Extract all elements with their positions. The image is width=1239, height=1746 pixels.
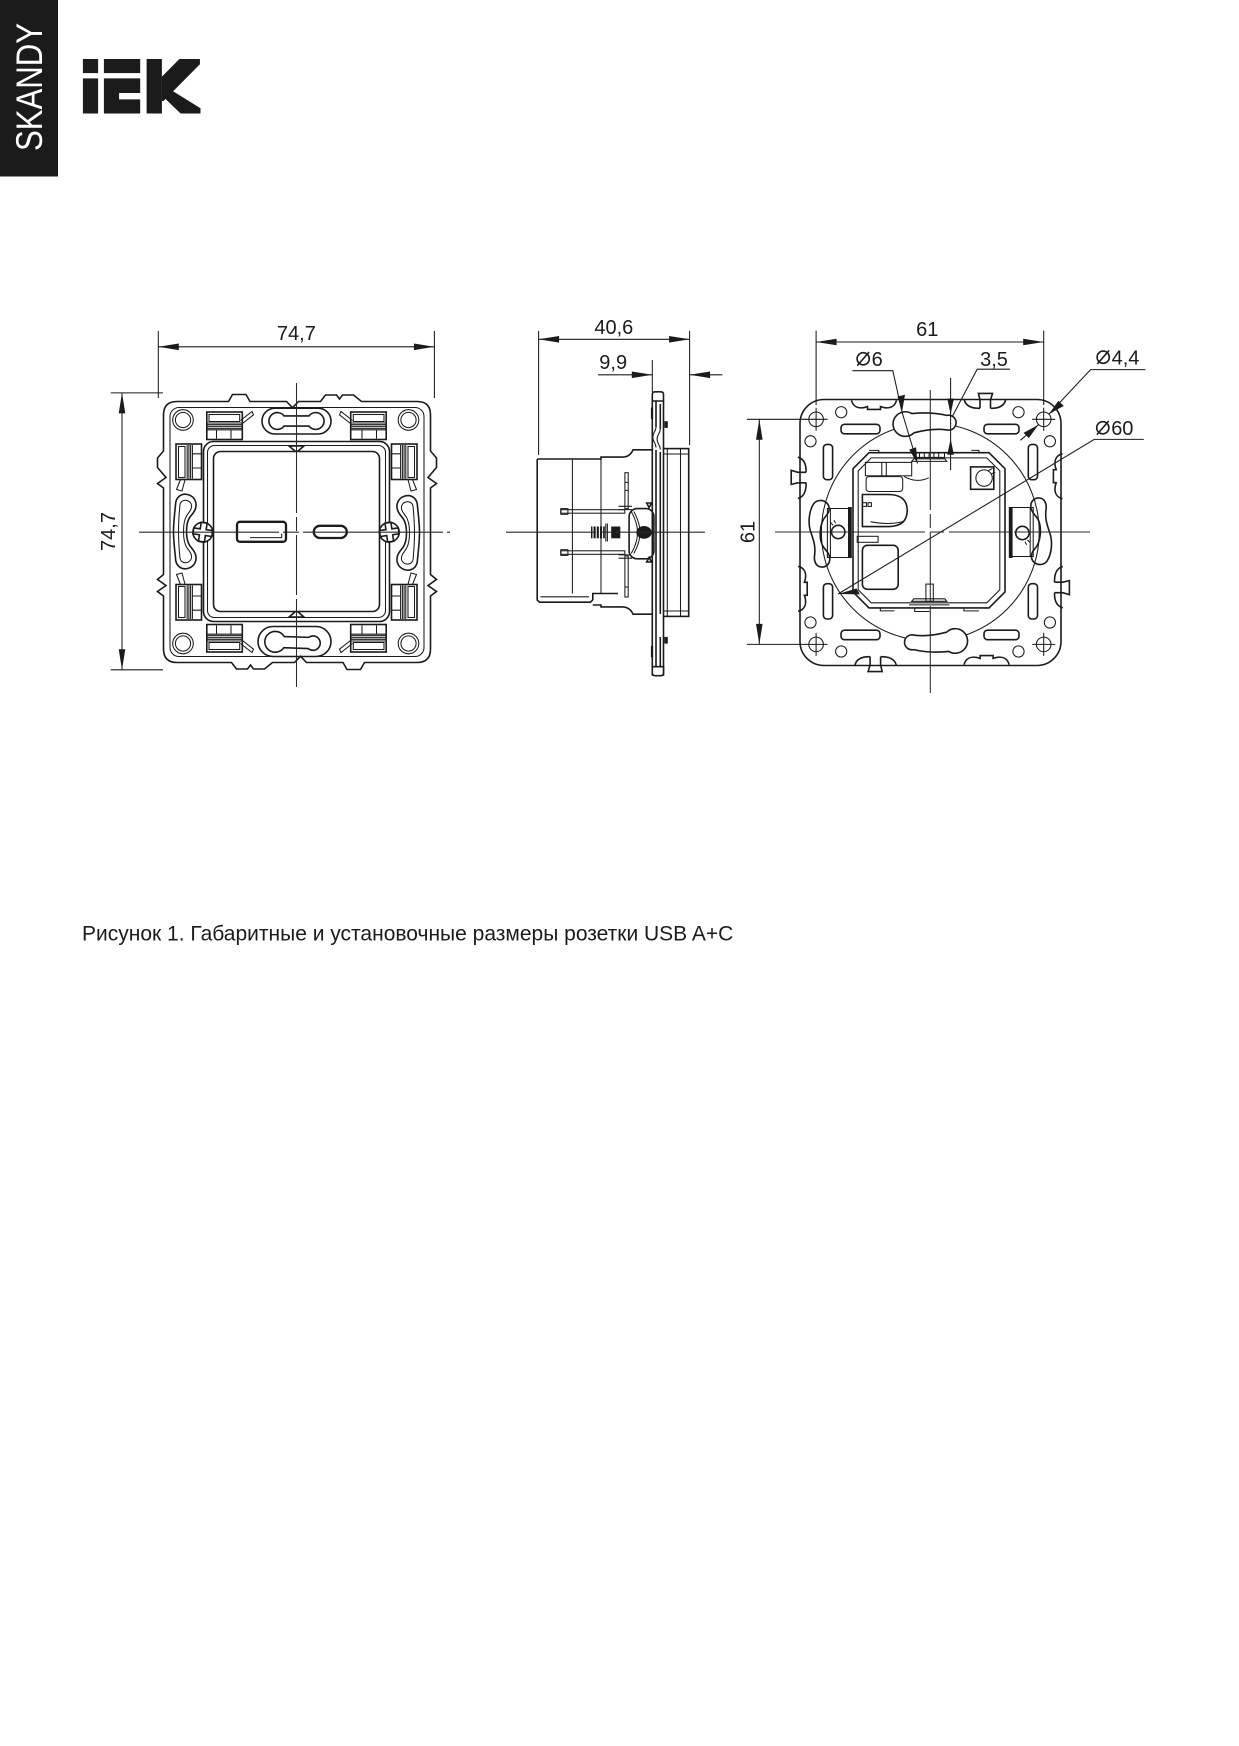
- svg-text:60: 60: [1111, 418, 1133, 440]
- svg-text:3,5: 3,5: [980, 349, 1008, 371]
- svg-text:Рисунок 1. Габаритные и устано: Рисунок 1. Габаритные и установочные раз…: [82, 923, 733, 946]
- svg-text:SKANDY: SKANDY: [9, 23, 50, 151]
- svg-text:40,6: 40,6: [594, 317, 633, 339]
- svg-text:6: 6: [872, 349, 883, 371]
- svg-text:61: 61: [738, 521, 760, 543]
- svg-text:61: 61: [916, 319, 938, 341]
- svg-text:4,4: 4,4: [1112, 348, 1140, 370]
- svg-text:9,9: 9,9: [599, 352, 627, 374]
- svg-text:74,7: 74,7: [98, 512, 120, 551]
- svg-text:74,7: 74,7: [277, 323, 316, 345]
